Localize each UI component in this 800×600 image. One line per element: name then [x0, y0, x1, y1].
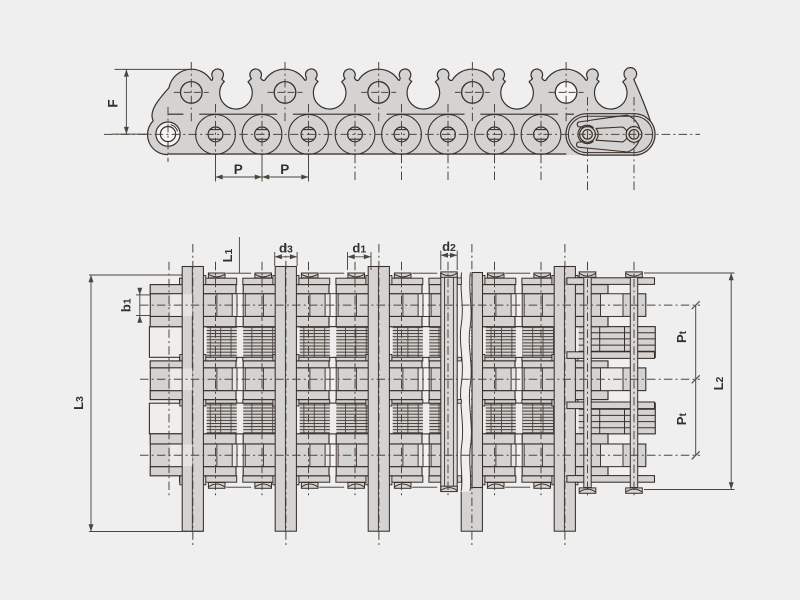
svg-text:b1: b1: [119, 298, 134, 312]
svg-text:P: P: [280, 162, 289, 177]
svg-text:d1: d1: [352, 241, 366, 256]
svg-text:F: F: [106, 99, 121, 107]
svg-text:d3: d3: [279, 241, 293, 256]
svg-text:P: P: [234, 162, 243, 177]
svg-text:L3: L3: [71, 396, 86, 410]
svg-text:d2: d2: [442, 239, 456, 254]
svg-text:L1: L1: [220, 248, 235, 262]
svg-text:Pt: Pt: [674, 413, 689, 426]
svg-text:L2: L2: [711, 376, 726, 390]
svg-text:Pt: Pt: [674, 330, 689, 343]
